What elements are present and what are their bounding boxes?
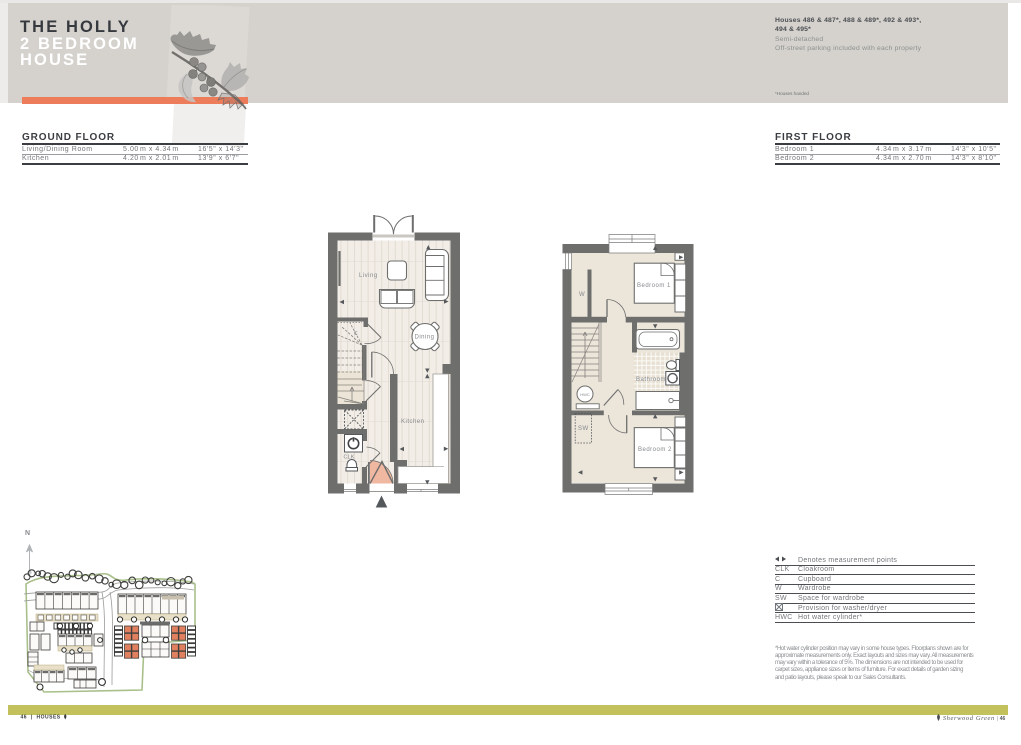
svg-text:SW: SW [578, 426, 589, 432]
svg-text:Dining: Dining [415, 335, 435, 341]
svg-text:Bathroom: Bathroom [636, 377, 666, 383]
svg-text:HWC: HWC [580, 392, 590, 397]
svg-text:W: W [579, 292, 585, 298]
svg-text:Kitchen: Kitchen [401, 419, 425, 425]
svg-text:Bedroom 1: Bedroom 1 [637, 283, 671, 289]
svg-text:N: N [25, 530, 30, 537]
svg-text:C: C [354, 331, 358, 337]
svg-text:Living: Living [359, 273, 378, 279]
svg-text:Bedroom 2: Bedroom 2 [638, 447, 672, 453]
